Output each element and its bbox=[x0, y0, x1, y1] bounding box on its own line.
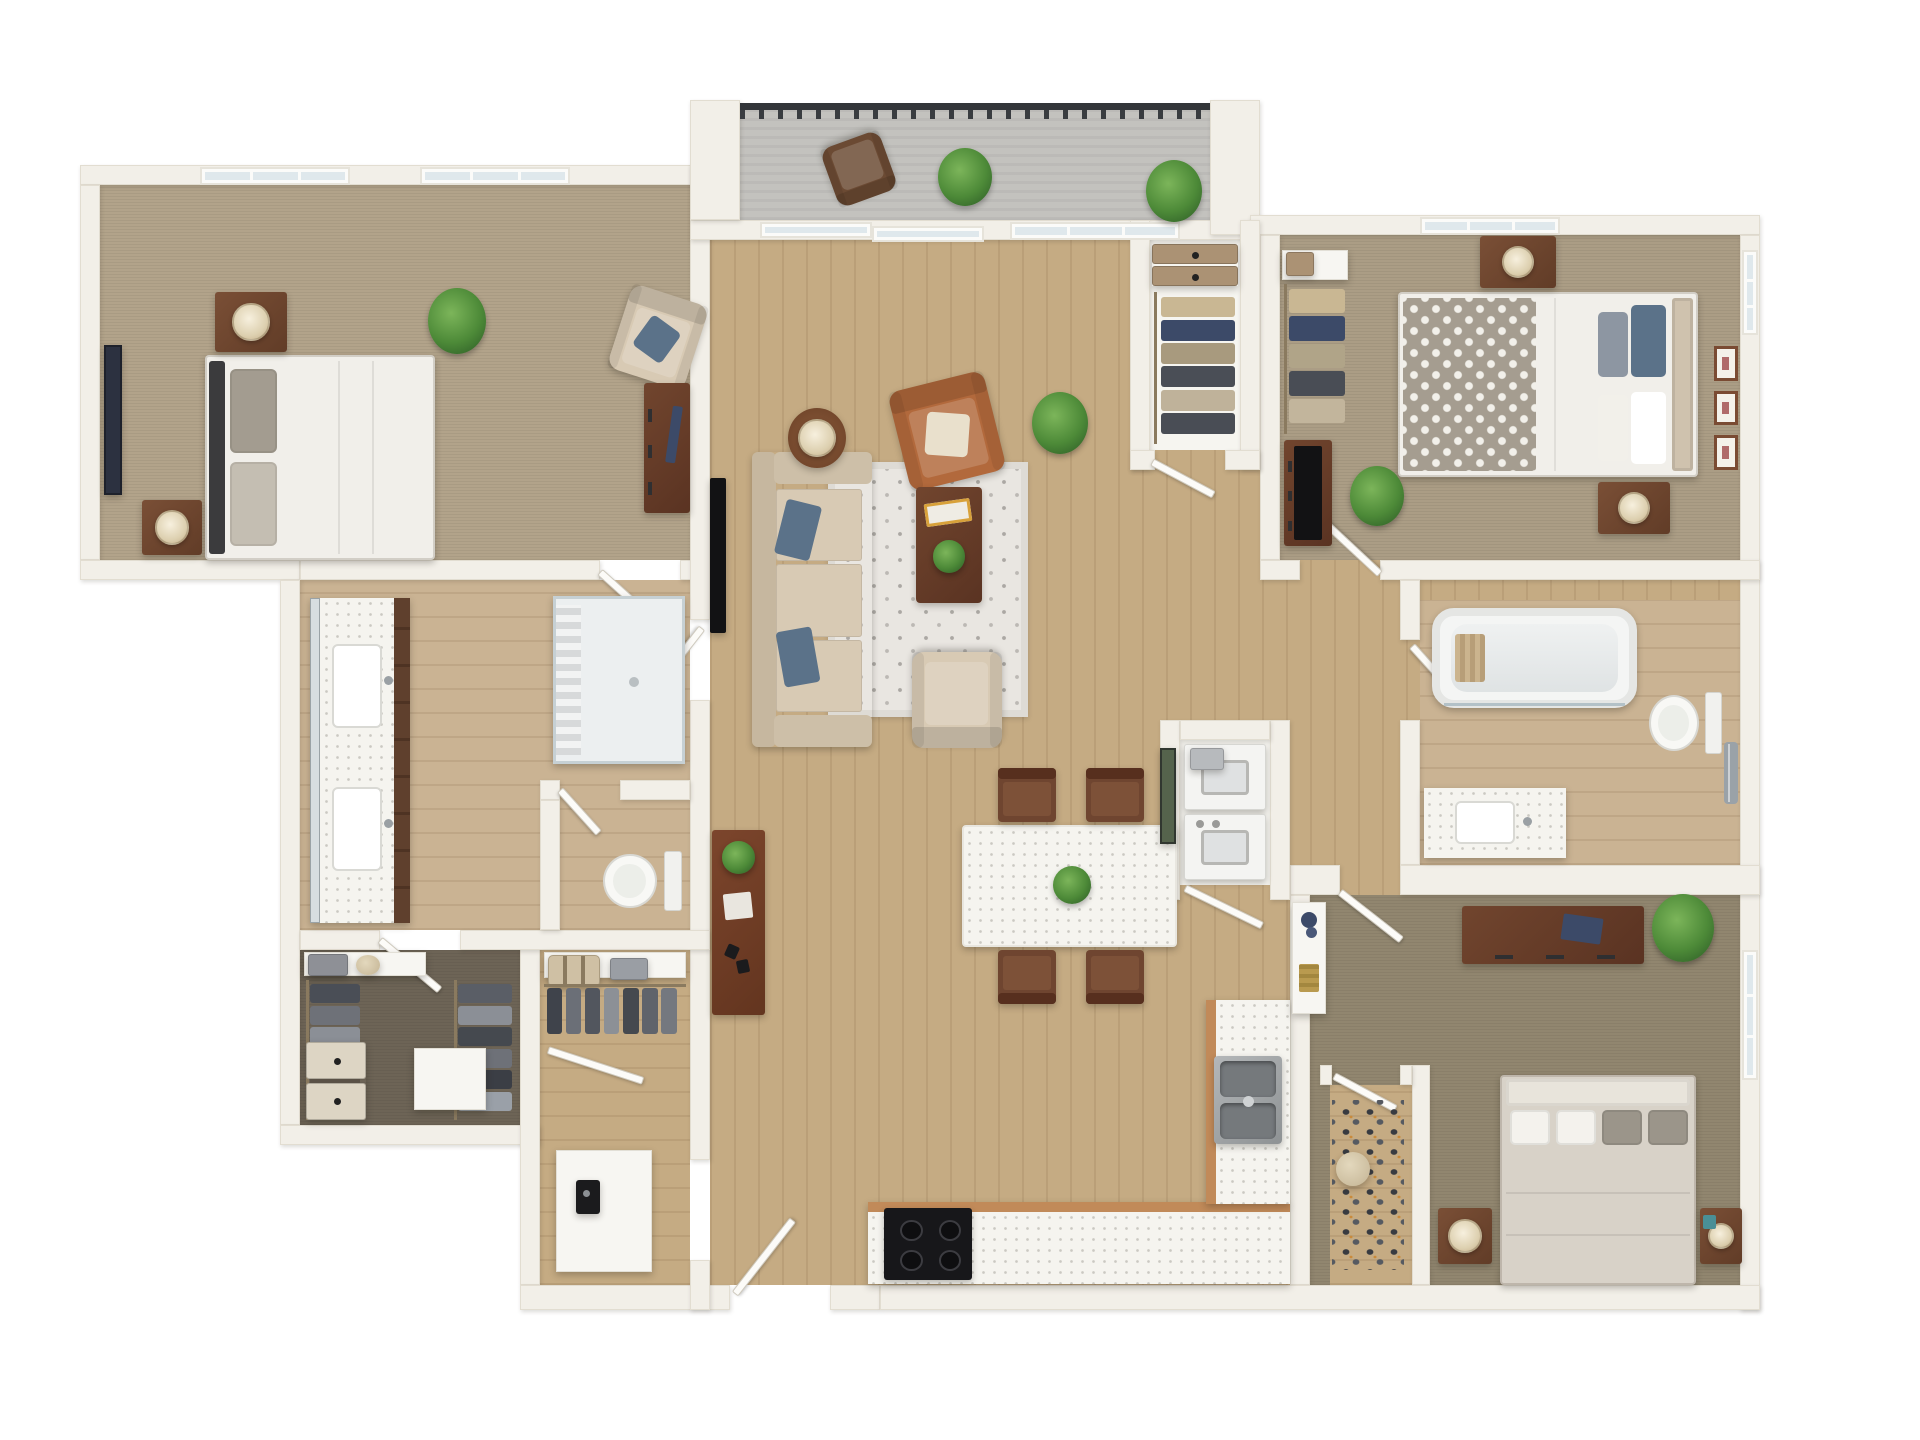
bedroom2-wardrobe-clothes-rail bbox=[1284, 284, 1287, 434]
wall-hallcloset-right bbox=[1240, 220, 1260, 470]
entry-cabinet bbox=[556, 1150, 652, 1272]
master-vanity-double-sink bbox=[332, 644, 382, 729]
bedroom2-bed-pillow bbox=[1598, 395, 1628, 460]
laundry-dryer-controls bbox=[1196, 820, 1204, 828]
wall-bottom-right bbox=[880, 1285, 1760, 1310]
balcony-slider-pane-2-glass bbox=[877, 231, 979, 237]
bedroom2-tv-console-handle bbox=[1288, 521, 1292, 532]
kitchen-stove-burner bbox=[900, 1220, 923, 1242]
hall-decor-niche-vase bbox=[1301, 912, 1317, 928]
bedroom2-tv-console bbox=[1284, 440, 1332, 546]
living-console-magazine bbox=[722, 892, 752, 921]
bedroom1-bed-fold bbox=[338, 361, 340, 554]
coat-closet-clothes-garment bbox=[566, 988, 581, 1033]
wall-nook-left bbox=[520, 930, 540, 1285]
bedroom3-bed-pillow bbox=[1510, 1110, 1550, 1145]
bedroom2-window-right bbox=[1742, 250, 1758, 335]
bedroom2-picture-frames-frame-art bbox=[1722, 446, 1729, 458]
bedroom1-bed bbox=[205, 355, 435, 560]
bedroom1-bed-pillow bbox=[230, 369, 277, 453]
dining-chair-1-backrest bbox=[998, 768, 1056, 779]
bedroom2-bed-fold bbox=[1554, 298, 1556, 472]
dining-chair-2 bbox=[1086, 768, 1144, 822]
living-window-mullion bbox=[1067, 224, 1070, 238]
wall-top-left bbox=[80, 165, 710, 185]
wall-laundry-top bbox=[1180, 720, 1270, 740]
wall-bath2-left-b bbox=[1400, 720, 1420, 865]
master-closet-clothes-left-garment bbox=[310, 1006, 360, 1025]
wall-bath2-left-a bbox=[1400, 580, 1420, 640]
dining-chair-4 bbox=[1086, 950, 1144, 1004]
living-window-mullion bbox=[1122, 224, 1125, 238]
master-closet-clothes-right-garment bbox=[458, 1006, 511, 1025]
bathroom2-tub-glass-panel bbox=[1444, 703, 1625, 706]
dining-chair-1-seat bbox=[1003, 782, 1051, 815]
bedroom1-window-1-mullion bbox=[250, 169, 253, 183]
coat-closet-clothes bbox=[544, 982, 686, 1036]
dining-chair-2-backrest bbox=[1086, 768, 1144, 779]
coat-closet-clothes-garment bbox=[623, 988, 638, 1033]
coat-closet-clothes-garment bbox=[642, 988, 657, 1033]
living-console-remote bbox=[724, 943, 740, 960]
bedroom3-bed-pillow bbox=[1556, 1110, 1596, 1145]
bathroom2-toilet-tank bbox=[1705, 692, 1722, 754]
living-console-remote bbox=[736, 958, 750, 973]
wall-wc-a bbox=[540, 780, 560, 800]
living-side-table bbox=[788, 408, 846, 468]
bedroom2-window-top-mullion bbox=[1512, 219, 1515, 233]
living-window bbox=[1010, 222, 1180, 240]
bedroom2-nightstand-top bbox=[1480, 236, 1556, 288]
bedroom1-plant bbox=[428, 288, 486, 354]
living-sofa bbox=[752, 452, 872, 747]
dining-plant bbox=[1053, 866, 1091, 904]
bedroom2-wardrobe-clothes-garment bbox=[1289, 289, 1346, 314]
living-coffee-table bbox=[916, 487, 982, 603]
balcony-slider-pane-1 bbox=[760, 222, 872, 238]
bedroom1-dresser-handle bbox=[648, 482, 652, 495]
bedroom2-picture-frames bbox=[1714, 346, 1738, 470]
living-armchair bbox=[912, 652, 1002, 748]
bedroom3-bed-headboard bbox=[1506, 1079, 1690, 1106]
bedroom2-bed-pillow bbox=[1631, 392, 1667, 464]
wall-bed3closet-right bbox=[1412, 1065, 1430, 1285]
bedroom3-bed-pillow bbox=[1602, 1110, 1642, 1145]
coat-closet-clothes-garment bbox=[661, 988, 676, 1033]
bedroom2-wardrobe-clothes bbox=[1282, 284, 1348, 434]
hall-closet-clothes-garment bbox=[1161, 366, 1235, 387]
master-closet-clothes-right-garment bbox=[458, 1027, 511, 1046]
laundry-dryer-controls bbox=[1212, 820, 1220, 828]
bedroom3-bed-fold bbox=[1506, 1192, 1690, 1194]
bedroom2-tv-console-tv bbox=[1294, 446, 1323, 539]
living-console bbox=[712, 830, 765, 1015]
master-closet-backpack bbox=[308, 954, 348, 976]
hall-closet-boxes-latch bbox=[1192, 274, 1199, 281]
bathroom2-towel bbox=[1724, 742, 1738, 804]
living-wall-tv bbox=[710, 478, 726, 633]
bedroom1-bed-pillow bbox=[230, 462, 277, 546]
bedroom2-wardrobe-clothes-garment bbox=[1289, 344, 1346, 369]
kitchen-stove-burner bbox=[939, 1250, 962, 1272]
dining-chair-3-backrest bbox=[998, 993, 1056, 1004]
living-sofa-back bbox=[752, 452, 776, 747]
bedroom1-window-2-mullion bbox=[470, 169, 473, 183]
laundry-basket bbox=[1190, 748, 1224, 770]
hall-decor-niche-vase bbox=[1306, 927, 1317, 938]
bedroom1-window-2-mullion bbox=[518, 169, 521, 183]
living-sofa-cushion bbox=[776, 564, 862, 636]
dining-chair-3 bbox=[998, 950, 1056, 1004]
bedroom1-bed-fold bbox=[372, 361, 374, 554]
bedroom1-nightstand-bottom bbox=[142, 500, 202, 555]
bedroom1-nightstand-top-lamp bbox=[232, 303, 269, 340]
living-armchair-arm bbox=[912, 652, 924, 748]
wall-closet-bottom bbox=[280, 1125, 540, 1145]
dining-chair-4-backrest bbox=[1086, 993, 1144, 1004]
bedroom3-window-right bbox=[1742, 950, 1758, 1080]
screenshot-canvas bbox=[0, 0, 1920, 1440]
bathroom2-vanity-sink bbox=[1455, 801, 1515, 844]
wall-bath-closet-a bbox=[300, 930, 380, 950]
bedroom1-window-1 bbox=[200, 167, 350, 185]
master-closet-island bbox=[414, 1048, 486, 1110]
wall-bath-closet-b bbox=[460, 930, 710, 950]
wall-bed3-top bbox=[1290, 865, 1340, 895]
dining-chair-1 bbox=[998, 768, 1056, 822]
bedroom2-tv-console-handle bbox=[1288, 491, 1292, 502]
coat-closet-clothes-garment bbox=[547, 988, 562, 1033]
bathroom2-towel-fold bbox=[1728, 744, 1730, 801]
bedroom3-window-right-glass bbox=[1747, 955, 1753, 1075]
bedroom1-dresser-handle bbox=[648, 445, 652, 458]
wall-wc-left bbox=[540, 800, 560, 930]
wall-bed3closet-top-b bbox=[1400, 1065, 1412, 1085]
bedroom3-dresser-book bbox=[1561, 914, 1604, 945]
wall-bath2-bottom bbox=[1400, 865, 1760, 895]
wall-spine-c bbox=[690, 1260, 710, 1310]
bathroom2-tub bbox=[1432, 608, 1637, 708]
coat-closet-clothes-rail bbox=[544, 984, 686, 987]
kitchen-stove-burner bbox=[939, 1220, 962, 1242]
master-vanity-double-cabinet bbox=[394, 598, 410, 923]
bedroom3-closet-shoes bbox=[1332, 1100, 1404, 1270]
hall-decor-niche-books bbox=[1299, 964, 1319, 993]
bathroom2-toilet-seat bbox=[1658, 705, 1688, 741]
bathroom2-toilet bbox=[1646, 686, 1722, 760]
dining-chair-4-seat bbox=[1091, 956, 1139, 989]
entry-coffee-maker bbox=[576, 1180, 600, 1214]
bedroom2-window-top-glass bbox=[1425, 222, 1555, 230]
bedroom2-window-right-glass bbox=[1747, 255, 1753, 330]
bedroom1-bed-headboard bbox=[209, 361, 225, 554]
bedroom1-wall-art bbox=[104, 345, 122, 495]
hall-closet-boxes bbox=[1152, 244, 1238, 286]
bedroom2-wardrobe-clothes-garment bbox=[1289, 399, 1346, 424]
kitchen-sink-basin bbox=[1220, 1061, 1276, 1097]
bathroom2-vanity bbox=[1424, 788, 1566, 858]
master-shower-curtain bbox=[556, 605, 581, 754]
master-vanity-double-sink bbox=[332, 787, 382, 872]
hall-closet-clothes-garment bbox=[1161, 390, 1235, 411]
balcony-plant-1 bbox=[938, 148, 992, 206]
bedroom3-nightstand-left-lamp bbox=[1448, 1219, 1481, 1252]
bedroom3-bed-pillow bbox=[1648, 1110, 1688, 1145]
bedroom2-bed-pillow bbox=[1598, 312, 1628, 377]
wall-entry-bottom-b bbox=[830, 1285, 880, 1310]
hall-closet-clothes-rail bbox=[1154, 292, 1157, 444]
living-armchair-arm bbox=[990, 652, 1002, 748]
bedroom2-tv-console-handle bbox=[1288, 461, 1292, 472]
bedroom3-dresser-handle bbox=[1546, 955, 1564, 959]
living-window-glass bbox=[1015, 227, 1175, 235]
bedroom1-dresser-book bbox=[665, 406, 683, 464]
bedroom3-dresser bbox=[1462, 906, 1644, 964]
floor-plan-3d-render bbox=[0, 0, 1920, 1440]
bedroom2-plant bbox=[1350, 466, 1404, 526]
hall-closet-clothes-garment bbox=[1161, 413, 1235, 434]
master-vanity-double bbox=[310, 598, 410, 923]
master-vanity-double-faucet bbox=[384, 676, 393, 685]
wall-bed2-left bbox=[1260, 235, 1280, 560]
master-closet-clothes-right-garment bbox=[458, 984, 511, 1003]
living-side-table-lamp bbox=[798, 419, 835, 457]
wall-wc-b bbox=[620, 780, 690, 800]
wall-left-upper bbox=[80, 185, 100, 560]
entry-coffee-maker-dot bbox=[583, 1190, 590, 1197]
kitchen-sink-basin bbox=[1220, 1103, 1276, 1139]
living-sofa-armrest bbox=[774, 715, 872, 747]
living-armchair-seat bbox=[926, 662, 989, 725]
bedroom3-plant bbox=[1652, 894, 1714, 962]
wall-balcony-stub-left bbox=[690, 100, 740, 220]
bedroom1-nightstand-top bbox=[215, 292, 287, 352]
bedroom2-window-top bbox=[1420, 217, 1560, 235]
bathroom2-vanity-faucet bbox=[1523, 817, 1532, 826]
bedroom2-picture-frames-frame-art bbox=[1722, 357, 1729, 369]
bedroom3-window-right-mullion bbox=[1744, 1035, 1756, 1038]
hall-closet-clothes-garment bbox=[1161, 297, 1235, 318]
master-closet-boxes bbox=[306, 1042, 366, 1120]
bedroom2-bed bbox=[1398, 292, 1698, 477]
kitchen-sink bbox=[1214, 1056, 1282, 1144]
bedroom2-window-top-mullion bbox=[1467, 219, 1470, 233]
living-console-plant bbox=[722, 841, 756, 874]
bedroom1-dresser bbox=[644, 383, 690, 513]
bedroom2-bed-blanket bbox=[1403, 298, 1536, 472]
bathroom2-tub-bath-mat bbox=[1455, 634, 1485, 681]
master-toilet-tank bbox=[664, 851, 682, 911]
wall-bed2-bottom-a bbox=[1260, 560, 1300, 580]
bedroom3-nightstand-right-book bbox=[1703, 1215, 1716, 1230]
bedroom2-nightstand-bottom-lamp bbox=[1618, 492, 1650, 524]
living-coffee-table-plant bbox=[933, 540, 965, 572]
wall-bed3closet-top-a bbox=[1320, 1065, 1332, 1085]
living-plant bbox=[1032, 392, 1088, 454]
wall-hallcloset-left bbox=[1130, 220, 1150, 470]
bedroom1-window-1-glass bbox=[205, 172, 345, 180]
wall-laundry-right bbox=[1270, 720, 1290, 900]
bedroom1-nightstand-bottom-lamp bbox=[155, 510, 189, 544]
hall-closet-clothes-garment bbox=[1161, 343, 1235, 364]
bedroom3-bed bbox=[1500, 1075, 1696, 1285]
kitchen-stove bbox=[884, 1208, 972, 1280]
master-shower bbox=[553, 596, 685, 764]
balcony-railing bbox=[740, 103, 1210, 119]
bedroom1-window-1-mullion bbox=[298, 169, 301, 183]
hall-closet-clothes bbox=[1152, 292, 1238, 444]
bedroom3-bed-fold bbox=[1506, 1234, 1690, 1236]
coat-closet-clothes-garment bbox=[604, 988, 619, 1033]
bedroom2-nightstand-top-lamp bbox=[1502, 246, 1534, 278]
master-closet-clothes-left-garment bbox=[310, 984, 360, 1003]
hall-wall-art bbox=[1160, 748, 1176, 844]
master-vanity-double-mirror bbox=[310, 598, 320, 923]
hall-closet-boxes-latch bbox=[1192, 252, 1199, 259]
bedroom2-nightstand-bottom bbox=[1598, 482, 1670, 534]
balcony-plant-2 bbox=[1146, 160, 1202, 222]
bedroom2-picture-frames-frame-art bbox=[1722, 402, 1729, 414]
master-vanity-double-faucet bbox=[384, 819, 393, 828]
hall-closet-clothes-garment bbox=[1161, 320, 1235, 341]
bedroom2-wardrobe-box bbox=[1286, 252, 1314, 276]
bedroom1-window-2 bbox=[420, 167, 570, 185]
bedroom3-dresser-handle bbox=[1597, 955, 1615, 959]
wall-step-left bbox=[80, 560, 300, 580]
living-armchair-back bbox=[912, 727, 1002, 748]
bedroom3-closet-hatbox bbox=[1336, 1152, 1370, 1186]
bedroom2-window-right-mullion bbox=[1744, 305, 1756, 308]
dining-chair-2-seat bbox=[1091, 782, 1139, 815]
bedroom3-window-right-mullion bbox=[1744, 994, 1756, 997]
kitchen-stove-burner bbox=[900, 1250, 923, 1272]
master-toilet-seat bbox=[613, 864, 646, 899]
laundry-dryer-door bbox=[1201, 830, 1249, 865]
master-closet-boxes-latch bbox=[334, 1058, 341, 1065]
bedroom2-bed-pillow bbox=[1631, 305, 1667, 377]
bedroom3-nightstand-left bbox=[1438, 1208, 1492, 1264]
bedroom2-wardrobe-clothes-garment bbox=[1289, 316, 1346, 341]
master-toilet bbox=[600, 845, 682, 917]
bedroom2-wardrobe-clothes-garment bbox=[1289, 371, 1346, 396]
kitchen-sink-faucet bbox=[1243, 1096, 1254, 1107]
hall-decor-niche bbox=[1292, 902, 1326, 1014]
coat-closet-duffel bbox=[610, 958, 648, 980]
bedroom2-bed-headboard bbox=[1672, 298, 1693, 472]
wall-bed2-bottom-b bbox=[1380, 560, 1760, 580]
dining-chair-3-seat bbox=[1003, 956, 1051, 989]
master-shower-drain bbox=[629, 677, 639, 687]
coat-closet-clothes-garment bbox=[585, 988, 600, 1033]
bedroom3-nightstand-right bbox=[1700, 1208, 1742, 1264]
wall-right-outer bbox=[1740, 235, 1760, 1310]
bedroom1-window-2-glass bbox=[425, 172, 565, 180]
wall-left-lower bbox=[280, 580, 300, 1125]
master-closet-boxes-latch bbox=[334, 1098, 341, 1105]
wall-hallcloset-bottom-a bbox=[1130, 450, 1155, 470]
bedroom2-window-right-mullion bbox=[1744, 279, 1756, 282]
bedroom1-dresser-handle bbox=[648, 409, 652, 422]
master-closet-hat bbox=[356, 955, 380, 975]
balcony-slider-pane-1-glass bbox=[765, 227, 867, 233]
laundry-dryer bbox=[1184, 814, 1266, 880]
balcony-slider-pane-2 bbox=[872, 226, 984, 242]
living-coffee-table-magazine bbox=[924, 498, 973, 527]
wall-hallcloset-bottom-b bbox=[1225, 450, 1260, 470]
living-leather-chair-pillow bbox=[925, 411, 971, 457]
bedroom3-dresser-handle bbox=[1495, 955, 1513, 959]
wall-bed1-bottom-a bbox=[300, 560, 600, 580]
